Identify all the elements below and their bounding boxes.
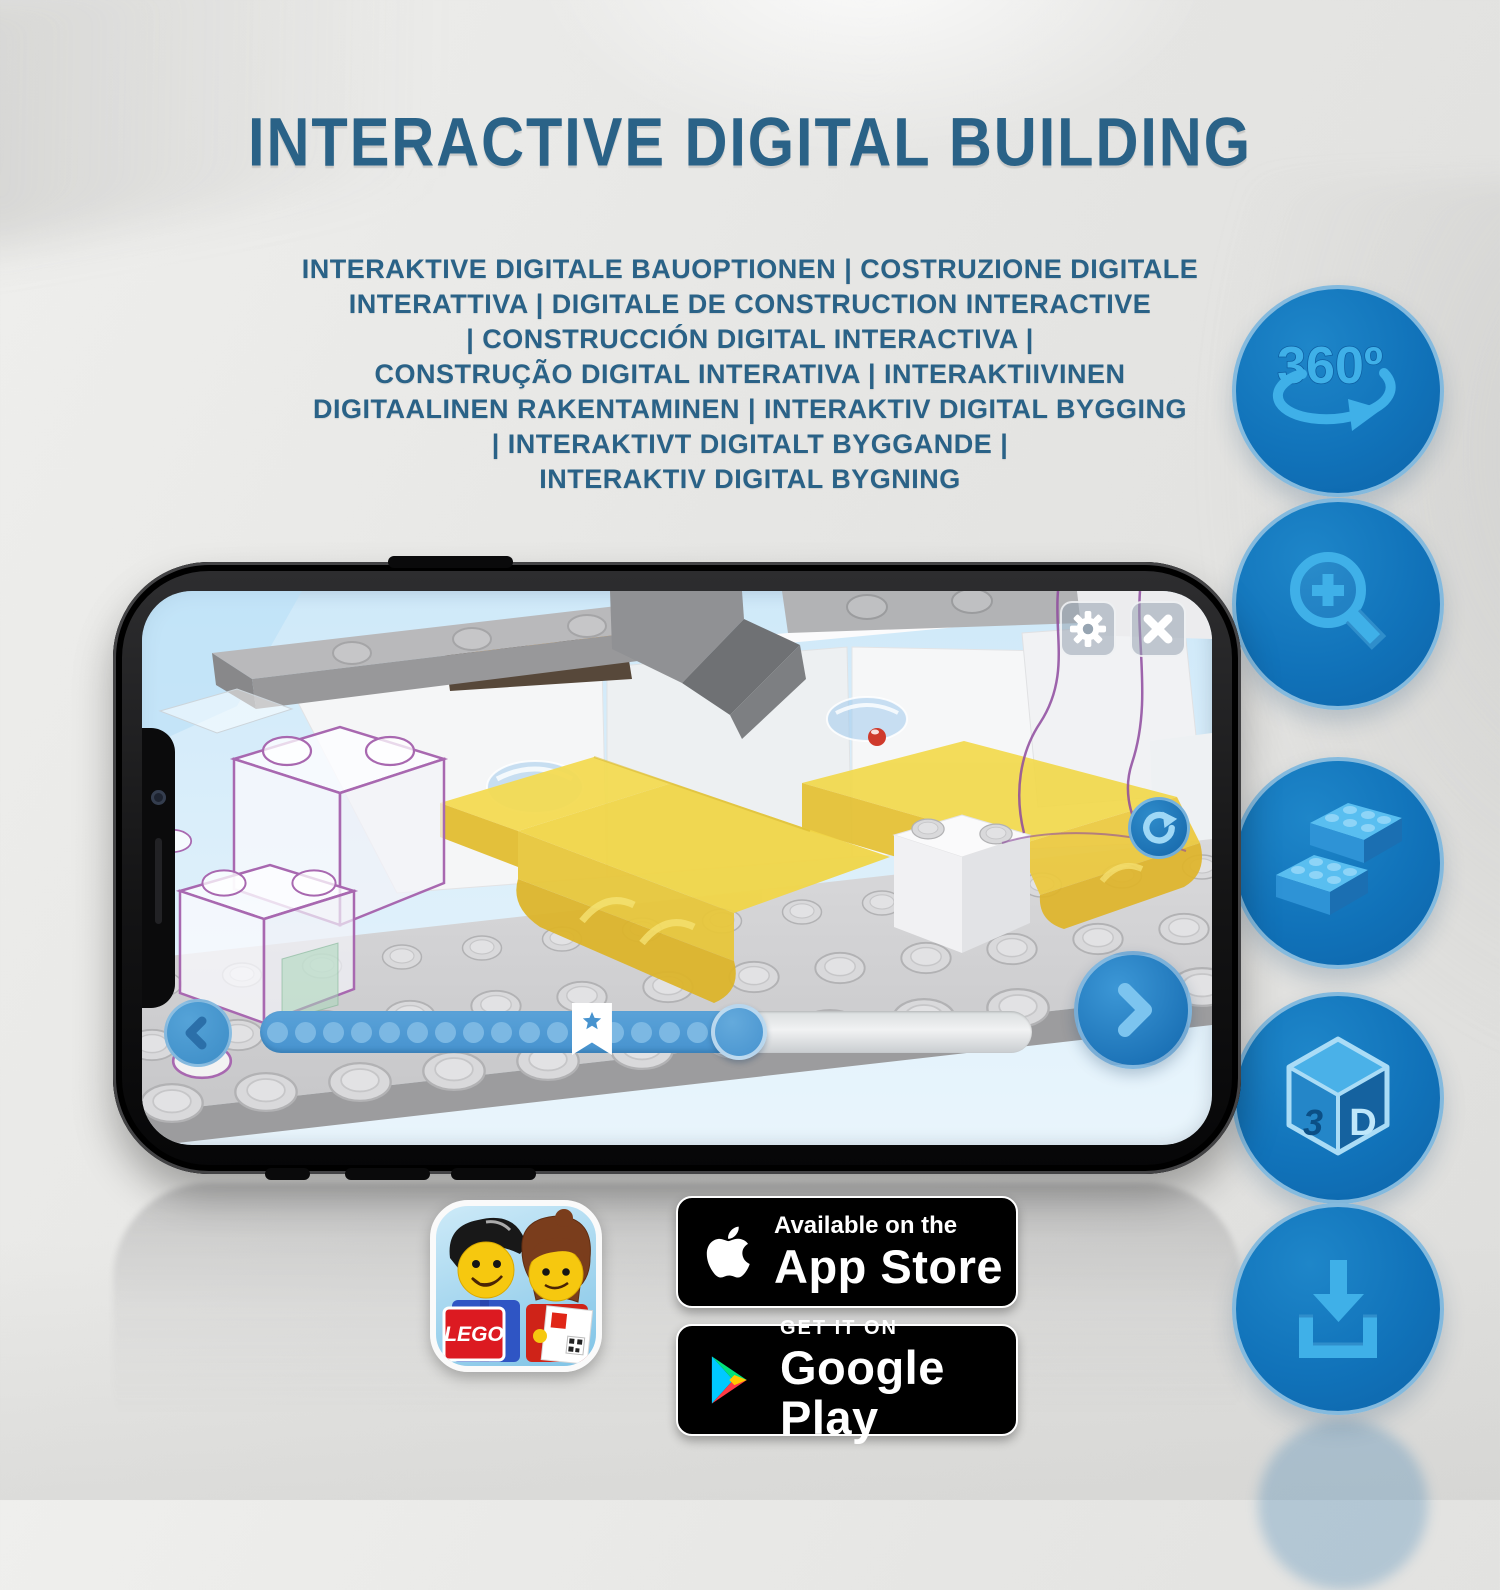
feature-360-rotation: 360º bbox=[1232, 285, 1444, 497]
google-play-tagline: GET IT ON bbox=[780, 1318, 1016, 1339]
subtitle-line: INTERATTIVA | DIGITALE DE CONSTRUCTION I… bbox=[65, 287, 1435, 322]
cube-face-d: D bbox=[1349, 1102, 1376, 1144]
download-icon bbox=[1271, 1242, 1405, 1376]
subtitle-block: INTERAKTIVE DIGITALE BAUOPTIONEN | COSTR… bbox=[65, 252, 1435, 497]
phone-side-button bbox=[388, 556, 513, 568]
previous-step-button[interactable] bbox=[164, 999, 232, 1067]
brick-stack-icon bbox=[1268, 793, 1408, 933]
360-rotation-icon: 360º bbox=[1268, 321, 1408, 461]
app-store-tagline: Available on the bbox=[774, 1213, 1003, 1238]
3d-cube-icon: 3 D bbox=[1271, 1031, 1405, 1165]
lego-3d-viewport[interactable] bbox=[142, 591, 1212, 1145]
google-play-name: Google Play bbox=[780, 1343, 1016, 1442]
feature-3d-view: 3 D bbox=[1232, 992, 1444, 1204]
camera-notch bbox=[142, 728, 175, 1008]
close-icon bbox=[1141, 612, 1175, 646]
slider-handle[interactable] bbox=[711, 1004, 767, 1060]
next-step-button[interactable] bbox=[1074, 951, 1192, 1069]
slider-fill bbox=[260, 1011, 739, 1053]
feature-download bbox=[1232, 1203, 1444, 1415]
earpiece-speaker bbox=[155, 838, 162, 924]
phone-screen bbox=[142, 591, 1212, 1145]
subtitle-line: DIGITAALINEN RAKENTAMINEN | INTERAKTIV D… bbox=[65, 392, 1435, 427]
subtitle-line: INTERAKTIV DIGITAL BYGNING bbox=[65, 462, 1435, 497]
phone-volume-button bbox=[345, 1168, 430, 1180]
page-title: INTERACTIVE DIGITAL BUILDING bbox=[30, 104, 1470, 182]
360-label: 360º bbox=[1277, 337, 1383, 395]
subtitle-line: CONSTRUÇÃO DIGITAL INTERATIVA | INTERAKT… bbox=[65, 357, 1435, 392]
zoom-in-icon bbox=[1271, 537, 1405, 671]
phone-mute-switch bbox=[265, 1168, 310, 1180]
star-icon bbox=[581, 1010, 603, 1032]
feature-zoom bbox=[1232, 498, 1444, 710]
app-store-badge[interactable]: Available on the App Store bbox=[676, 1196, 1018, 1308]
google-play-badge[interactable]: GET IT ON Google Play bbox=[676, 1324, 1018, 1436]
chevron-right-icon bbox=[1105, 982, 1161, 1038]
settings-button[interactable] bbox=[1060, 601, 1116, 657]
front-camera bbox=[151, 790, 166, 805]
build-progress-slider[interactable] bbox=[260, 1011, 1032, 1053]
gear-icon bbox=[1069, 610, 1107, 648]
rotate-icon bbox=[1139, 808, 1179, 848]
circle-reflection bbox=[1258, 1420, 1428, 1590]
phone-volume-button bbox=[451, 1168, 536, 1180]
subtitle-line: | INTERAKTIVT DIGITALT BYGGANDE | bbox=[65, 427, 1435, 462]
subtitle-line: INTERAKTIVE DIGITALE BAUOPTIONEN | COSTR… bbox=[65, 252, 1435, 287]
phone-mockup bbox=[113, 562, 1241, 1174]
lego-logo-text: LEGO bbox=[444, 1323, 504, 1346]
rotate-view-button[interactable] bbox=[1128, 797, 1190, 859]
app-store-name: App Store bbox=[774, 1242, 1003, 1291]
feature-bricks bbox=[1232, 757, 1444, 969]
lego-app-icon[interactable]: LEGO bbox=[430, 1200, 602, 1372]
google-play-icon bbox=[704, 1353, 758, 1407]
lego-app-artwork: LEGO bbox=[436, 1206, 596, 1366]
close-button[interactable] bbox=[1130, 601, 1186, 657]
apple-icon bbox=[704, 1223, 752, 1281]
subtitle-line: | CONSTRUCCIÓN DIGITAL INTERACTIVA | bbox=[65, 322, 1435, 357]
cube-face-3: 3 bbox=[1303, 1102, 1323, 1143]
chevron-left-icon bbox=[181, 1016, 215, 1050]
